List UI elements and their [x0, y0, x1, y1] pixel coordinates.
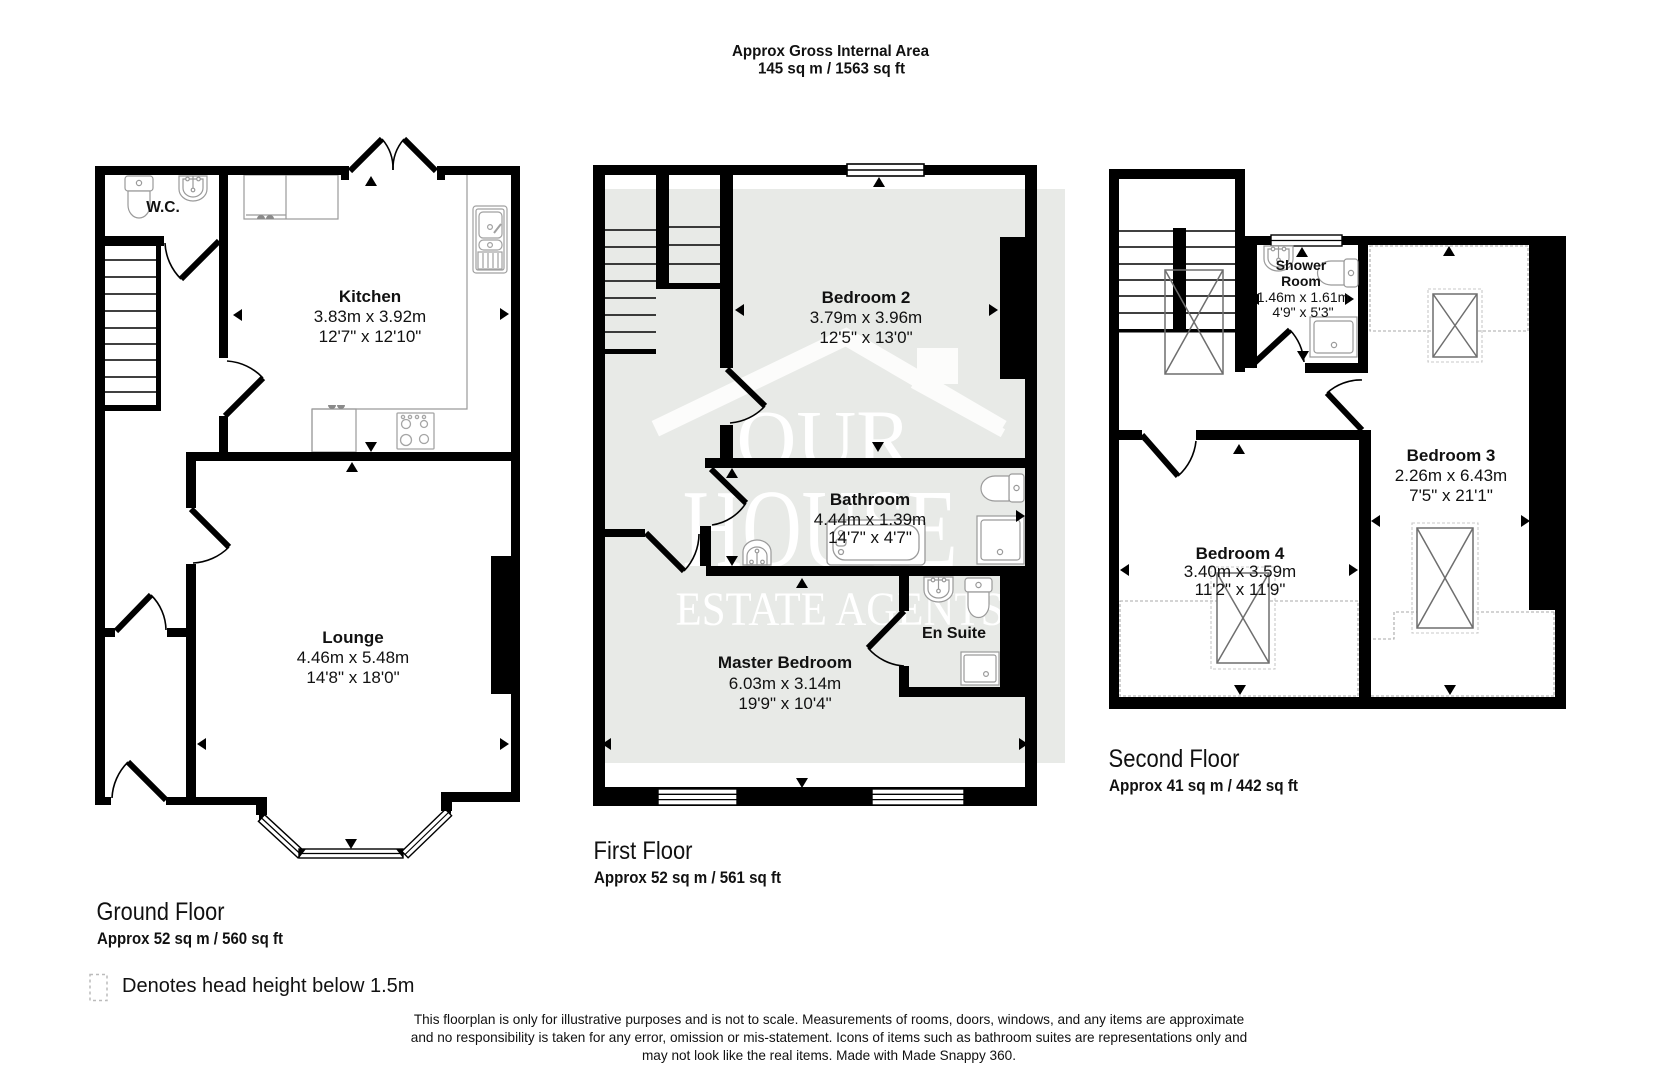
svg-text:Approx Gross Internal Area: Approx Gross Internal Area: [732, 43, 929, 60]
svg-text:12'7" x 12'10": 12'7" x 12'10": [319, 327, 422, 346]
svg-text:Approx 52 sq m / 561 sq ft: Approx 52 sq m / 561 sq ft: [594, 868, 781, 887]
svg-text:and no responsibility is taken: and no responsibility is taken for any e…: [411, 1030, 1247, 1045]
svg-text:1.46m x 1.61m: 1.46m x 1.61m: [1257, 289, 1350, 305]
svg-text:Master Bedroom: Master Bedroom: [718, 653, 852, 672]
svg-text:En Suite: En Suite: [922, 625, 986, 642]
svg-text:Second Floor: Second Floor: [1109, 745, 1240, 773]
svg-text:4'9" x 5'3": 4'9" x 5'3": [1272, 304, 1333, 320]
svg-text:12'5" x 13'0": 12'5" x 13'0": [819, 328, 912, 347]
svg-text:Approx 52 sq m / 560 sq ft: Approx 52 sq m / 560 sq ft: [97, 929, 283, 948]
svg-text:Bedroom 4: Bedroom 4: [1196, 544, 1285, 563]
svg-text:19'9" x 10'4": 19'9" x 10'4": [738, 694, 831, 713]
svg-text:7'5" x 21'1": 7'5" x 21'1": [1409, 486, 1493, 505]
svg-text:First Floor: First Floor: [594, 837, 693, 865]
svg-text:Kitchen: Kitchen: [339, 287, 401, 306]
svg-text:4.44m x 1.39m: 4.44m x 1.39m: [814, 510, 926, 529]
svg-text:W.C.: W.C.: [146, 199, 180, 216]
svg-text:14'7" x 4'7": 14'7" x 4'7": [828, 528, 912, 547]
svg-text:14'8" x 18'0": 14'8" x 18'0": [306, 668, 399, 687]
svg-text:145 sq m / 1563 sq ft: 145 sq m / 1563 sq ft: [758, 61, 905, 78]
svg-text:2.26m x 6.43m: 2.26m x 6.43m: [1395, 466, 1507, 485]
svg-text:11'2" x 11'9": 11'2" x 11'9": [1195, 580, 1286, 599]
svg-text:3.79m x 3.96m: 3.79m x 3.96m: [810, 308, 922, 327]
svg-text:Bathroom: Bathroom: [830, 490, 910, 509]
svg-text:may not look like the real ite: may not look like the real items. Made w…: [642, 1048, 1016, 1063]
svg-text:3.40m x 3.59m: 3.40m x 3.59m: [1184, 562, 1296, 581]
svg-text:Lounge: Lounge: [322, 628, 383, 647]
svg-text:Approx 41 sq m / 442 sq ft: Approx 41 sq m / 442 sq ft: [1109, 776, 1298, 795]
svg-text:Bedroom 2: Bedroom 2: [822, 288, 911, 307]
svg-text:Shower: Shower: [1276, 257, 1327, 273]
svg-text:3.83m x 3.92m: 3.83m x 3.92m: [314, 307, 426, 326]
svg-text:Ground Floor: Ground Floor: [97, 898, 225, 926]
svg-text:Room: Room: [1281, 273, 1321, 289]
svg-text:This floorplan is only for ill: This floorplan is only for illustrative …: [414, 1012, 1244, 1027]
svg-text:Bedroom 3: Bedroom 3: [1407, 446, 1496, 465]
svg-text:6.03m x 3.14m: 6.03m x 3.14m: [729, 674, 841, 693]
svg-text:Denotes head height below 1.5m: Denotes head height below 1.5m: [122, 975, 414, 997]
svg-text:4.46m x 5.48m: 4.46m x 5.48m: [297, 648, 409, 667]
